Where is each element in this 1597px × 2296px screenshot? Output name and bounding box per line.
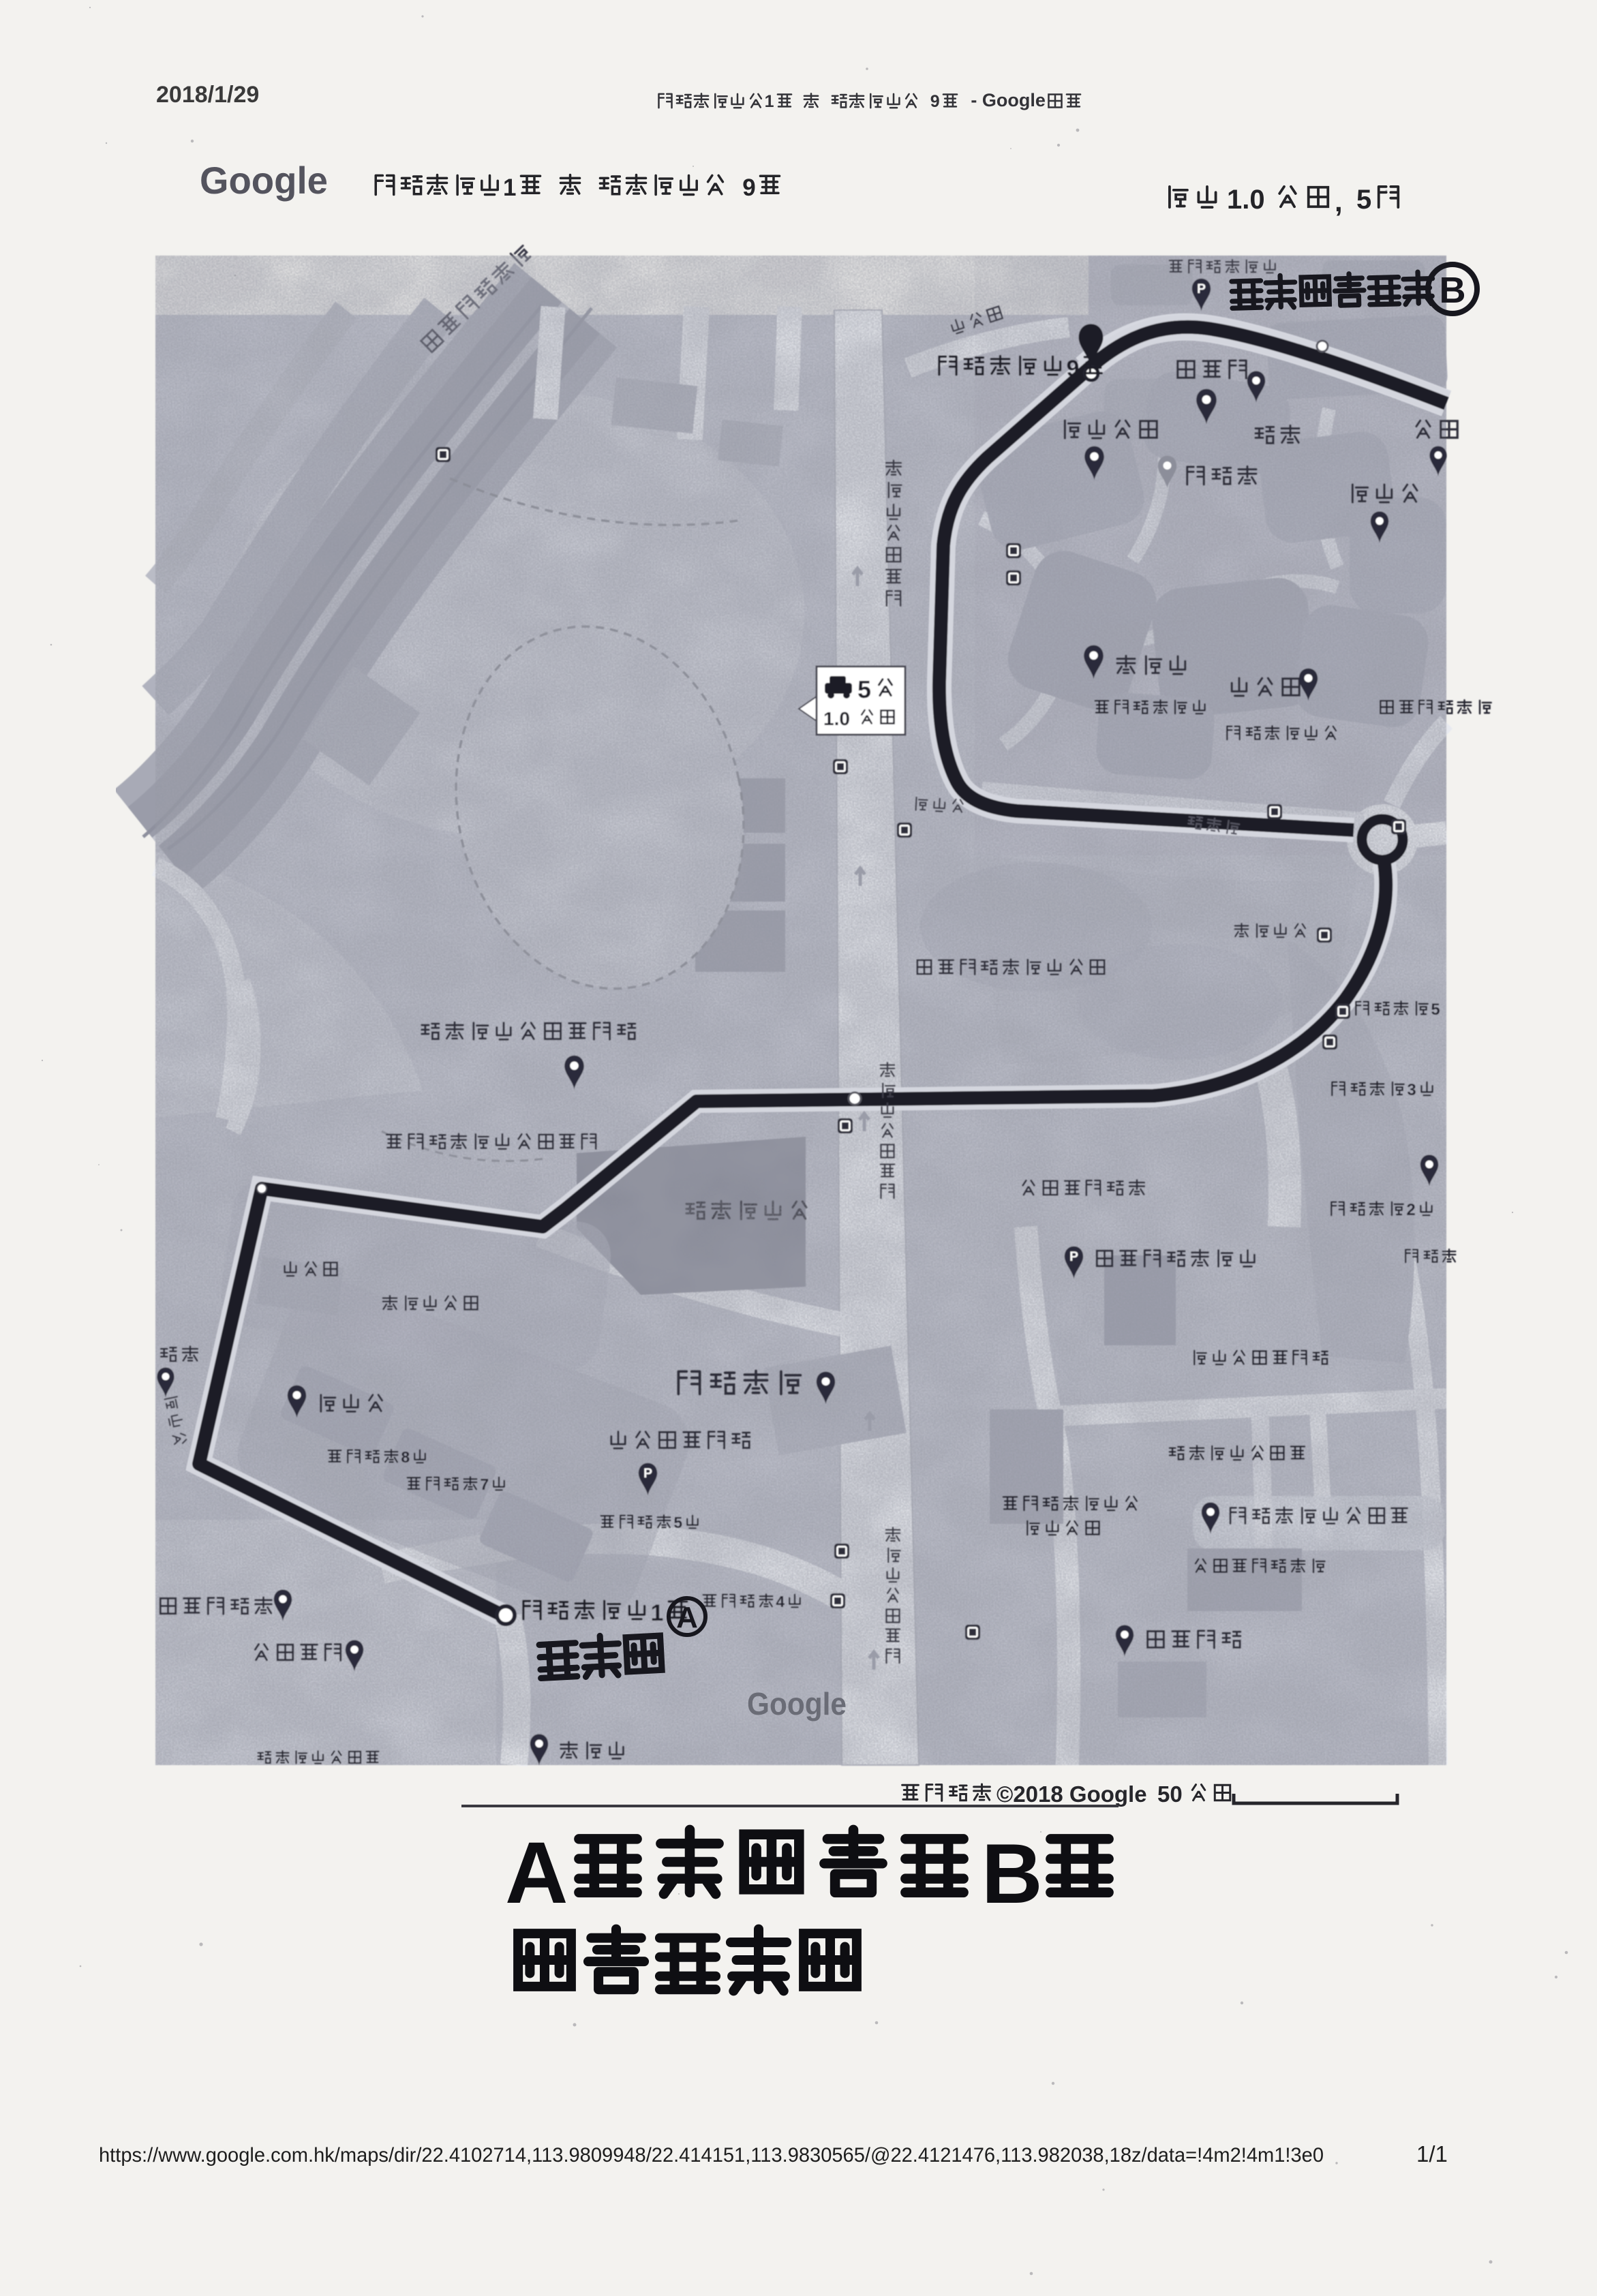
svg-text:Google: Google [200, 159, 328, 202]
svg-text:1.0: 1.0 [823, 708, 850, 729]
svg-text:5: 5 [857, 675, 871, 703]
svg-text:9: 9 [1067, 356, 1080, 382]
svg-text:Google: Google [747, 1686, 847, 1721]
svg-text:5: 5 [673, 1514, 682, 1531]
svg-text:3: 3 [1407, 1081, 1416, 1099]
svg-text:50: 50 [1157, 1781, 1183, 1807]
svg-text:B: B [1440, 270, 1466, 311]
svg-text:2: 2 [1406, 1201, 1415, 1219]
svg-text:4: 4 [776, 1593, 785, 1610]
svg-text:9: 9 [742, 174, 755, 201]
svg-text:1: 1 [503, 174, 516, 201]
svg-text:©2018 Google: ©2018 Google [997, 1781, 1147, 1807]
svg-text:7: 7 [480, 1475, 489, 1493]
svg-text:B: B [982, 1827, 1043, 1921]
svg-text:1.0: 1.0 [1227, 185, 1265, 215]
svg-text:A: A [505, 1824, 568, 1922]
svg-text:1/1: 1/1 [1416, 2141, 1448, 2167]
svg-text:8: 8 [401, 1448, 410, 1466]
svg-text:5: 5 [1431, 1000, 1440, 1019]
svg-text:- Google: - Google [971, 90, 1046, 110]
svg-text:2018/1/29: 2018/1/29 [156, 82, 259, 108]
svg-text:,: , [1335, 185, 1343, 217]
svg-text:A: A [676, 1601, 698, 1634]
svg-text:9: 9 [930, 92, 940, 111]
svg-text:1: 1 [765, 92, 774, 111]
svg-text:5: 5 [1356, 185, 1371, 215]
svg-text:1: 1 [651, 1600, 664, 1626]
svg-text:https://www.google.com.hk/maps: https://www.google.com.hk/maps/dir/22.41… [99, 2144, 1324, 2167]
